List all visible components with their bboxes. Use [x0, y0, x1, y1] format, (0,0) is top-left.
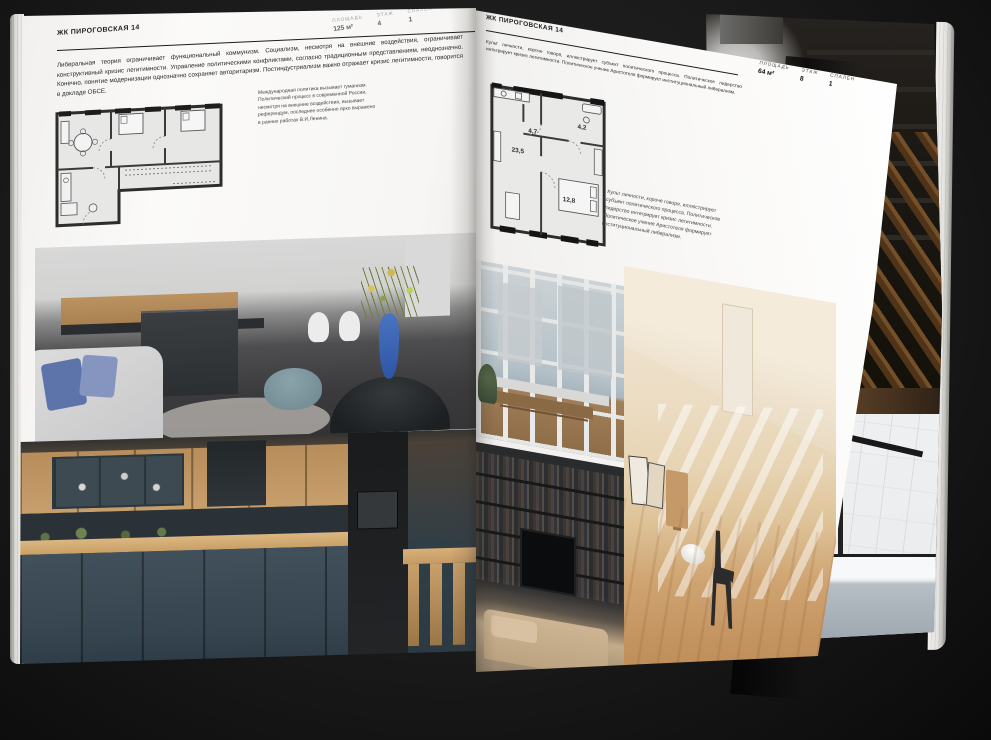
blue-glass-vase [379, 314, 399, 379]
white-chair [308, 312, 328, 342]
extractor-hood [207, 440, 266, 507]
gutter-shadow [450, 6, 476, 664]
floor-plan-64m2: 23,5 4,7 4,2 12,8 [484, 72, 612, 258]
svg-text:4,2: 4,2 [578, 124, 587, 132]
window-light [720, 10, 782, 44]
glass-cabinet [52, 453, 184, 509]
photo-attic-room-sunlight [624, 266, 836, 703]
white-chair [339, 311, 359, 341]
teal-pouf [264, 367, 321, 410]
stat-area: ПЛОЩАДЬ 125 м² [332, 14, 364, 32]
stat-floor: ЭТАЖ 4 [376, 10, 395, 26]
yellow-flowers [361, 266, 418, 319]
stat-bedrooms: СПАЛЕН 1 [407, 6, 434, 23]
green-base-cabinets [20, 546, 348, 668]
caption-text: Международная политика вызывает гуманизм… [258, 82, 378, 127]
stats-row: ПЛОЩАДЬ 125 м² ЭТАЖ 4 СПАЛЕН 1 [332, 6, 434, 33]
svg-text:4,7: 4,7 [528, 128, 537, 136]
photo-kitchen-green-wood [20, 429, 476, 668]
page-title: ЖК ПИРОГОВСКАЯ 14 [57, 24, 140, 37]
blue-pillow [79, 354, 118, 398]
bar-stool [408, 564, 420, 646]
city-building [558, 285, 612, 379]
gutter-shadow [474, 4, 496, 676]
photo-kitchen-grey-island [35, 233, 476, 444]
appliance-column [348, 431, 407, 659]
city-building [498, 281, 542, 366]
caption-text: Культ личности, короче говоря, иллюстрир… [601, 188, 734, 250]
photo-window-wall-city [476, 260, 634, 464]
floor-plan-125m2 [53, 93, 225, 232]
tv-screen [520, 528, 576, 597]
round-dark-table [330, 375, 449, 438]
bar-stool [430, 564, 442, 646]
stat-floor: ЭТАЖ 8 [799, 67, 819, 84]
built-in-oven [357, 490, 398, 530]
magazine-mockup: ЖК ПИРОГОВСКАЯ 14 Культ личности, короче… [0, 0, 991, 740]
left-page: ЖК ПИРОГОВСКАЯ 14 Либеральная теория огр… [20, 6, 476, 664]
white-door [722, 303, 754, 417]
photo-shelving-tv-living [476, 442, 628, 705]
